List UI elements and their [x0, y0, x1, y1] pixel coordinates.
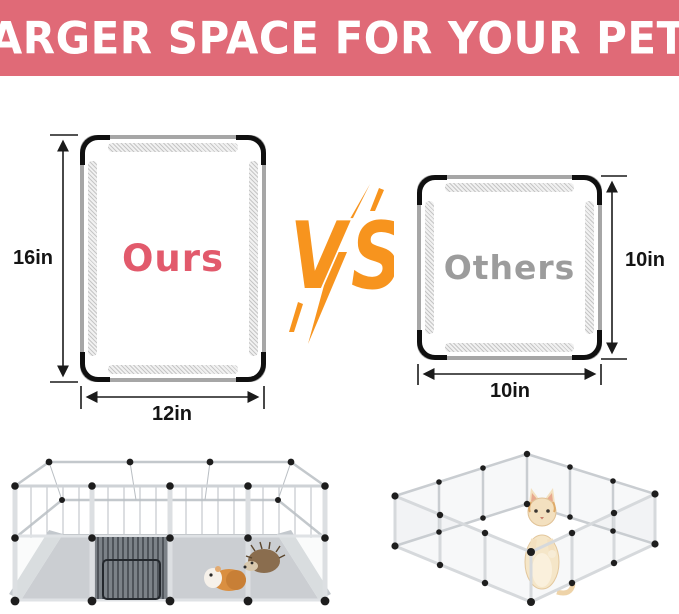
floor-mat	[21, 534, 319, 600]
kitten	[525, 488, 573, 593]
front-rails	[395, 494, 655, 602]
hedgehog	[244, 542, 286, 573]
back-rails	[395, 454, 655, 546]
header-banner: LARGER SPACE FOR YOUR PETS	[0, 0, 679, 76]
ours-label: Ours	[84, 139, 262, 378]
vs-label: VS	[290, 202, 394, 310]
others-playpen-photo	[345, 444, 675, 614]
guinea-pig	[204, 566, 246, 591]
others-label: Others	[421, 179, 598, 356]
pen-door	[95, 537, 168, 599]
others-height-label: 10in	[616, 249, 674, 272]
lightning-bolt-icon	[289, 184, 384, 344]
pen-connectors	[11, 459, 330, 606]
pen-wire-grid	[31, 462, 311, 538]
pen-connectors	[391, 451, 658, 606]
pen-top-rails	[15, 462, 325, 538]
others-panel-diagram: Others	[417, 175, 602, 360]
floor-mat-left-flap	[9, 530, 63, 600]
ours-width-label: 12in	[130, 403, 214, 426]
ours-height-label: 16in	[6, 247, 60, 270]
pen-walls	[395, 454, 655, 602]
floor-mat-right-flap	[277, 530, 331, 600]
page-title: LARGER SPACE FOR YOUR PETS	[0, 12, 679, 63]
front-clear-panels	[15, 536, 325, 600]
ours-playpen-photo	[5, 448, 335, 612]
vs-graphic: VS	[286, 184, 394, 352]
ours-panel-diagram: Ours	[80, 135, 266, 382]
others-width-label: 10in	[468, 380, 552, 403]
pen-posts	[15, 486, 325, 600]
